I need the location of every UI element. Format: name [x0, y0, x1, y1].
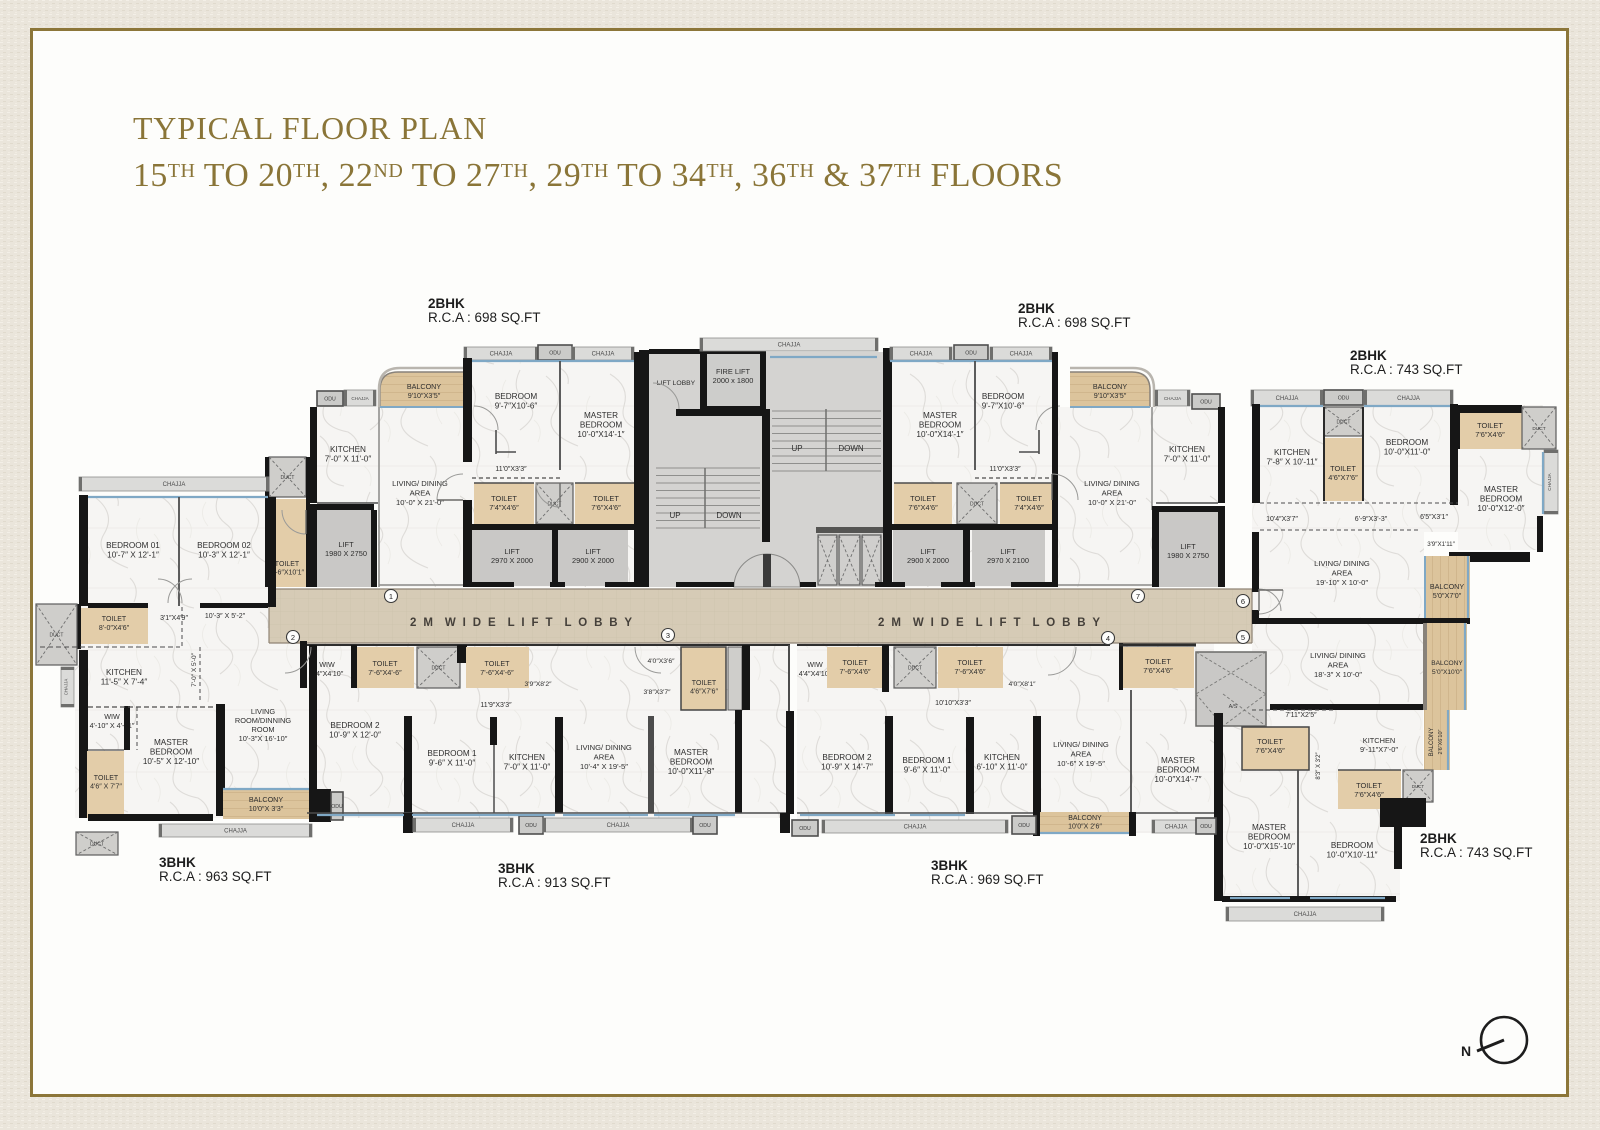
- svg-text:LIFT: LIFT: [920, 547, 936, 556]
- svg-text:9'-6″ X 11'-0″: 9'-6″ X 11'-0″: [904, 766, 951, 775]
- svg-text:A/S: A/S: [1229, 704, 1238, 710]
- svg-text:CHAJJA: CHAJJA: [1294, 912, 1317, 918]
- svg-text:TOILET: TOILET: [102, 616, 127, 623]
- svg-text:ROOM/DINNING: ROOM/DINNING: [235, 716, 292, 725]
- svg-text:TOILET: TOILET: [94, 775, 119, 782]
- svg-text:DUCT: DUCT: [908, 666, 922, 672]
- svg-text:10'-0″X11'-8″: 10'-0″X11'-8″: [668, 767, 715, 776]
- svg-text:2970 X 2100: 2970 X 2100: [987, 556, 1029, 565]
- svg-text:2BHK: 2BHK: [428, 296, 465, 311]
- svg-text:4'6″ X 7'7″: 4'6″ X 7'7″: [90, 784, 122, 791]
- svg-text:UP: UP: [669, 511, 680, 520]
- svg-text:BEDROOM: BEDROOM: [1248, 833, 1290, 842]
- svg-text:TOILET: TOILET: [1016, 494, 1042, 503]
- svg-text:TOILET: TOILET: [1356, 781, 1382, 790]
- svg-text:7'-0″ X 5'-0″: 7'-0″ X 5'-0″: [191, 652, 198, 687]
- svg-text:CHAJJA: CHAJJA: [1010, 352, 1033, 358]
- svg-text:10'-0″X14'-1″: 10'-0″X14'-1″: [916, 430, 963, 439]
- svg-text:5'0″X7'0″: 5'0″X7'0″: [1433, 591, 1462, 600]
- svg-text:R.C.A : 743 SQ.FT: R.C.A : 743 SQ.FT: [1350, 362, 1463, 377]
- svg-text:TOILET: TOILET: [1477, 421, 1503, 430]
- svg-text:MASTER: MASTER: [1252, 823, 1286, 832]
- svg-text:ODU: ODU: [324, 397, 336, 403]
- svg-text:KITCHEN: KITCHEN: [1274, 448, 1310, 457]
- svg-text:CHAJJA: CHAJJA: [904, 825, 927, 831]
- svg-text:10'-0″X12'-0″: 10'-0″X12'-0″: [1477, 504, 1524, 513]
- svg-text:DOWN: DOWN: [716, 511, 742, 520]
- svg-text:MASTER: MASTER: [584, 411, 618, 420]
- svg-text:7'-6″X4'6″: 7'-6″X4'6″: [839, 667, 870, 676]
- svg-text:3BHK: 3BHK: [498, 861, 535, 876]
- svg-text:4'6″X7'6″: 4'6″X7'6″: [1328, 473, 1358, 482]
- svg-text:BEDROOM 01: BEDROOM 01: [106, 541, 160, 550]
- svg-text:UP: UP: [791, 444, 802, 453]
- svg-text:TOILET: TOILET: [275, 561, 300, 568]
- svg-text:BALCONY: BALCONY: [1429, 728, 1435, 757]
- svg-text:DUCT: DUCT: [50, 633, 64, 639]
- svg-text:18'-3″ X 10'-0″: 18'-3″ X 10'-0″: [1314, 670, 1362, 679]
- svg-text:CHAJJA: CHAJJA: [1397, 396, 1420, 402]
- svg-text:CHAJJA: CHAJJA: [351, 396, 369, 401]
- svg-text:ODU: ODU: [1338, 396, 1350, 402]
- svg-text:BALCONY: BALCONY: [1431, 660, 1463, 667]
- svg-text:DUCT: DUCT: [970, 502, 984, 508]
- svg-text:7'6″X4'6″: 7'6″X4'6″: [1255, 746, 1285, 755]
- svg-text:MASTER: MASTER: [923, 411, 957, 420]
- svg-text:CHAJJA: CHAJJA: [224, 829, 247, 835]
- svg-text:DUCT: DUCT: [281, 475, 295, 481]
- svg-text:2900 X 2000: 2900 X 2000: [572, 556, 614, 565]
- svg-text:ODU: ODU: [1200, 400, 1212, 406]
- svg-text:4'6″X7'6″: 4'6″X7'6″: [690, 689, 718, 696]
- svg-text:R.C.A : 698 SQ.FT: R.C.A : 698 SQ.FT: [1018, 315, 1131, 330]
- svg-text:6'-10″ X 11'-0″: 6'-10″ X 11'-0″: [976, 763, 1027, 772]
- svg-text:6'-9″X3'-3″: 6'-9″X3'-3″: [1355, 516, 1388, 523]
- svg-text:CHAJJA: CHAJJA: [1165, 825, 1188, 831]
- svg-text:DOWN: DOWN: [838, 444, 864, 453]
- svg-text:3BHK: 3BHK: [159, 855, 196, 870]
- svg-text:LIFT: LIFT: [1000, 547, 1016, 556]
- svg-text:TOILET: TOILET: [593, 494, 619, 503]
- svg-text:2BHK: 2BHK: [1018, 301, 1055, 316]
- svg-text:ODU: ODU: [1200, 824, 1212, 830]
- svg-text:LIVING/ DINING: LIVING/ DINING: [1314, 559, 1370, 568]
- svg-text:LIVING/ DINING: LIVING/ DINING: [576, 743, 632, 752]
- svg-text:10'-6″ X 19'-5″: 10'-6″ X 19'-5″: [1057, 759, 1105, 768]
- svg-text:BEDROOM: BEDROOM: [919, 421, 961, 430]
- svg-text:BEDROOM: BEDROOM: [982, 392, 1024, 401]
- svg-text:2BHK: 2BHK: [1350, 348, 1387, 363]
- svg-text:2: 2: [291, 633, 295, 642]
- svg-text:BEDROOM 1: BEDROOM 1: [427, 749, 477, 758]
- svg-text:10'-3″ X 12'-1″: 10'-3″ X 12'-1″: [198, 551, 250, 560]
- svg-text:BEDROOM: BEDROOM: [580, 421, 622, 430]
- svg-text:7: 7: [1136, 592, 1140, 601]
- svg-text:LIVING: LIVING: [251, 707, 275, 716]
- svg-text:BALCONY: BALCONY: [1093, 382, 1128, 391]
- svg-text:LIFT: LIFT: [585, 547, 601, 556]
- svg-text:10'-0″X14'-7″: 10'-0″X14'-7″: [1154, 775, 1201, 784]
- svg-text:10'10″X3'3″: 10'10″X3'3″: [935, 700, 971, 707]
- svg-text:1980 X 2750: 1980 X 2750: [1167, 551, 1209, 560]
- svg-text:7'4″X4'6″: 7'4″X4'6″: [489, 503, 519, 512]
- svg-text:BEDROOM: BEDROOM: [150, 748, 192, 757]
- svg-text:10'-4″ X 19'-5″: 10'-4″ X 19'-5″: [580, 762, 628, 771]
- svg-text:10'4″X3'7″: 10'4″X3'7″: [1266, 516, 1298, 523]
- svg-text:CHAJJA: CHAJJA: [910, 352, 933, 358]
- svg-text:11'-5″ X 7'-4″: 11'-5″ X 7'-4″: [101, 678, 148, 687]
- svg-text:BALCONY: BALCONY: [407, 382, 442, 391]
- svg-text:N: N: [1461, 1043, 1471, 1059]
- svg-text:KITCHEN: KITCHEN: [330, 445, 366, 454]
- svg-text:KITCHEN: KITCHEN: [1363, 736, 1395, 745]
- svg-text:TOILET: TOILET: [692, 680, 717, 687]
- svg-text:MASTER: MASTER: [674, 748, 708, 757]
- svg-text:TYPICAL FLOOR PLAN: TYPICAL FLOOR PLAN: [133, 111, 487, 146]
- svg-text:WIW: WIW: [807, 660, 823, 669]
- svg-text:7'-0″ X 11'-0″: 7'-0″ X 11'-0″: [504, 763, 551, 772]
- svg-text:11'0″X3'3″: 11'0″X3'3″: [989, 466, 1021, 473]
- svg-text:LIVING/ DINING: LIVING/ DINING: [1310, 651, 1366, 660]
- svg-text:KITCHEN: KITCHEN: [984, 753, 1020, 762]
- svg-text:8'-0″X4'6″: 8'-0″X4'6″: [99, 625, 130, 632]
- svg-text:4'0″X3'6″: 4'0″X3'6″: [647, 658, 675, 665]
- svg-text:TOILET: TOILET: [1257, 737, 1283, 746]
- svg-text:BEDROOM 2: BEDROOM 2: [822, 753, 872, 762]
- svg-text:TOILET: TOILET: [484, 659, 510, 668]
- svg-text:CHAJJA: CHAJJA: [607, 823, 630, 829]
- svg-text:CHAJJA: CHAJJA: [163, 482, 186, 488]
- svg-text:AREA: AREA: [1071, 750, 1093, 759]
- svg-text:19'-10″ X 10'-0″: 19'-10″ X 10'-0″: [1316, 578, 1368, 587]
- svg-text:10'-9″ X 14'-7″: 10'-9″ X 14'-7″: [821, 763, 873, 772]
- svg-text:10'-0″X14'-1″: 10'-0″X14'-1″: [577, 430, 624, 439]
- svg-text:LIVING/ DINING: LIVING/ DINING: [392, 479, 448, 488]
- svg-text:FIRE LIFT: FIRE LIFT: [716, 367, 751, 376]
- svg-text:R.C.A : 743 SQ.FT: R.C.A : 743 SQ.FT: [1420, 845, 1533, 860]
- svg-text:7'11″X2'5″: 7'11″X2'5″: [1285, 712, 1317, 719]
- svg-text:KITCHEN: KITCHEN: [509, 753, 545, 762]
- svg-text:7'-6″X4'-6″: 7'-6″X4'-6″: [368, 668, 402, 677]
- svg-text:R.C.A : 963 SQ.FT: R.C.A : 963 SQ.FT: [159, 869, 272, 884]
- svg-text:7'-6″X4'6″: 7'-6″X4'6″: [954, 667, 985, 676]
- svg-text:9'-7″X10'-6″: 9'-7″X10'-6″: [495, 402, 538, 411]
- svg-text:TOILET: TOILET: [910, 494, 936, 503]
- svg-text:DUCT: DUCT: [1412, 784, 1425, 789]
- svg-text:ODU: ODU: [1018, 823, 1030, 829]
- svg-text:9'10″X3'5″: 9'10″X3'5″: [1094, 391, 1127, 400]
- svg-text:6: 6: [1241, 597, 1245, 606]
- svg-text:CHAJJA: CHAJJA: [1547, 472, 1552, 490]
- svg-text:LIFT LOBBY: LIFT LOBBY: [657, 380, 696, 387]
- svg-text:AREA: AREA: [1332, 569, 1354, 578]
- svg-text:TOILET: TOILET: [491, 494, 517, 503]
- svg-text:11'0″X3'3″: 11'0″X3'3″: [495, 466, 527, 473]
- svg-text:7'-0″ X 11'-0″: 7'-0″ X 11'-0″: [325, 455, 372, 464]
- svg-text:BEDROOM: BEDROOM: [1480, 495, 1522, 504]
- svg-text:9'-7″X10'-6″: 9'-7″X10'-6″: [982, 402, 1025, 411]
- svg-text:MASTER: MASTER: [1484, 485, 1518, 494]
- svg-text:10'0″X 3'3″: 10'0″X 3'3″: [249, 804, 284, 813]
- svg-text:3'9″X8'2″: 3'9″X8'2″: [524, 681, 552, 688]
- svg-text:ODU: ODU: [525, 823, 537, 829]
- svg-text:ODU: ODU: [549, 351, 561, 357]
- svg-text:7'6″X4'6″: 7'6″X4'6″: [1354, 790, 1384, 799]
- svg-text:LIVING/ DINING: LIVING/ DINING: [1053, 740, 1109, 749]
- svg-text:AREA: AREA: [594, 753, 616, 762]
- svg-text:ODU: ODU: [965, 351, 977, 357]
- svg-text:1980 X 2750: 1980 X 2750: [325, 549, 367, 558]
- svg-text:KITCHEN: KITCHEN: [106, 668, 142, 677]
- svg-text:10'-0″X10'-11″: 10'-0″X10'-11″: [1326, 851, 1377, 860]
- svg-text:R.C.A : 969 SQ.FT: R.C.A : 969 SQ.FT: [931, 872, 1044, 887]
- svg-text:1: 1: [389, 592, 393, 601]
- svg-text:MASTER: MASTER: [1161, 756, 1195, 765]
- svg-text:9'-11″X7'-0″: 9'-11″X7'-0″: [1360, 745, 1398, 754]
- svg-text:7'-8″ X 10'-11″: 7'-8″ X 10'-11″: [1266, 458, 1317, 467]
- svg-text:CHAJJA: CHAJJA: [778, 343, 801, 349]
- svg-text:7'6″X4'6″: 7'6″X4'6″: [908, 503, 938, 512]
- svg-text:DUCT: DUCT: [432, 666, 446, 672]
- svg-text:BEDROOM: BEDROOM: [1157, 766, 1199, 775]
- svg-text:2970 X 2000: 2970 X 2000: [491, 556, 533, 565]
- svg-text:ROOM: ROOM: [252, 725, 275, 734]
- svg-text:LIVING/ DINING: LIVING/ DINING: [1084, 479, 1140, 488]
- svg-text:DUCT: DUCT: [1337, 420, 1351, 426]
- svg-text:WIW: WIW: [319, 660, 335, 669]
- svg-text:BEDROOM: BEDROOM: [670, 758, 712, 767]
- svg-text:10'-5″ X 12'-10″: 10'-5″ X 12'-10″: [143, 757, 199, 766]
- svg-text:9'-6″ X 11'-0″: 9'-6″ X 11'-0″: [429, 759, 476, 768]
- svg-text:AREA: AREA: [1328, 661, 1350, 670]
- svg-text:10'-3″ X 5'-2″: 10'-3″ X 5'-2″: [205, 613, 246, 620]
- svg-text:WIW: WIW: [104, 712, 120, 721]
- svg-text:10'0″X 2'6″: 10'0″X 2'6″: [1068, 824, 1102, 831]
- svg-text:R.C.A : 913 SQ.FT: R.C.A : 913 SQ.FT: [498, 875, 611, 890]
- svg-text:TOILET: TOILET: [842, 658, 868, 667]
- svg-text:TOILET: TOILET: [957, 658, 983, 667]
- svg-text:BEDROOM: BEDROOM: [495, 392, 537, 401]
- svg-text:BEDROOM 2: BEDROOM 2: [330, 721, 380, 730]
- svg-text:CHAJJA: CHAJJA: [1276, 396, 1299, 402]
- svg-text:CHAJJA: CHAJJA: [1164, 396, 1182, 401]
- svg-text:3'8″X3'7″: 3'8″X3'7″: [643, 689, 671, 696]
- svg-text:4'0″X8'1″: 4'0″X8'1″: [1008, 681, 1036, 688]
- svg-text:LIFT: LIFT: [504, 547, 520, 556]
- svg-text:ODU: ODU: [699, 823, 711, 829]
- svg-text:ODU: ODU: [799, 826, 811, 832]
- svg-text:7'4″X4'6″: 7'4″X4'6″: [1014, 503, 1044, 512]
- svg-text:BEDROOM 02: BEDROOM 02: [197, 541, 251, 550]
- svg-text:6'5″X3'1″: 6'5″X3'1″: [1420, 514, 1448, 521]
- svg-text:9'10″X3'5″: 9'10″X3'5″: [408, 391, 441, 400]
- svg-text:7'6″X4'6″: 7'6″X4'6″: [1143, 666, 1173, 675]
- svg-text:7'6″X4'6″: 7'6″X4'6″: [1475, 430, 1505, 439]
- svg-text:R.C.A : 698 SQ.FT: R.C.A : 698 SQ.FT: [428, 310, 541, 325]
- svg-text:KITCHEN: KITCHEN: [1169, 445, 1205, 454]
- svg-text:BEDROOM: BEDROOM: [1331, 841, 1373, 850]
- svg-text:8'3″ X 3'2″: 8'3″ X 3'2″: [1316, 752, 1322, 780]
- svg-text:2BHK: 2BHK: [1420, 831, 1457, 846]
- svg-text:BALCONY: BALCONY: [249, 795, 284, 804]
- svg-text:LIFT: LIFT: [1180, 542, 1196, 551]
- svg-text:10'-0″X11'-0″: 10'-0″X11'-0″: [1384, 448, 1431, 457]
- svg-text:10'-0″X15'-10″: 10'-0″X15'-10″: [1243, 842, 1295, 851]
- svg-text:TOILET: TOILET: [1330, 464, 1356, 473]
- svg-text:7'-6″X4'-6″: 7'-6″X4'-6″: [480, 668, 514, 677]
- svg-text:LIFT: LIFT: [338, 540, 354, 549]
- svg-text:10'-0″ X 21'-0″: 10'-0″ X 21'-0″: [1088, 498, 1136, 507]
- svg-text:5: 5: [1241, 633, 1245, 642]
- svg-text:4: 4: [1106, 634, 1110, 643]
- svg-text:7'6″X4'6″: 7'6″X4'6″: [591, 503, 621, 512]
- svg-text:10'-9″ X 12'-0″: 10'-9″ X 12'-0″: [329, 731, 381, 740]
- svg-text:5'0″X10'0″: 5'0″X10'0″: [1432, 669, 1463, 676]
- svg-text:TOILET: TOILET: [372, 659, 398, 668]
- svg-text:2'6″X6'10″: 2'6″X6'10″: [1438, 729, 1444, 754]
- svg-text:11'9″X3'3″: 11'9″X3'3″: [480, 702, 512, 709]
- svg-text:CHAJJA: CHAJJA: [64, 679, 69, 696]
- svg-text:10'-3″X 16'-10″: 10'-3″X 16'-10″: [239, 734, 288, 743]
- svg-text:CHAJJA: CHAJJA: [490, 352, 513, 358]
- svg-text:4'4″X4'10″: 4'4″X4'10″: [799, 669, 832, 678]
- svg-text:BEDROOM 1: BEDROOM 1: [902, 756, 952, 765]
- svg-text:3: 3: [666, 631, 670, 640]
- svg-text:MASTER: MASTER: [154, 738, 188, 747]
- svg-text:2000 x 1800: 2000 x 1800: [713, 376, 754, 385]
- svg-text:2900 X 2000: 2900 X 2000: [907, 556, 949, 565]
- svg-text:TOILET: TOILET: [1145, 657, 1171, 666]
- svg-text:ODU: ODU: [331, 804, 343, 810]
- svg-text:3BHK: 3BHK: [931, 858, 968, 873]
- svg-text:BALCONY: BALCONY: [1430, 582, 1465, 591]
- svg-text:CHAJJA: CHAJJA: [592, 352, 615, 358]
- svg-text:3'1″X4'9″: 3'1″X4'9″: [160, 615, 188, 622]
- svg-text:CHAJJA: CHAJJA: [452, 823, 475, 829]
- svg-text:7'-0″ X 11'-0″: 7'-0″ X 11'-0″: [1164, 455, 1211, 464]
- svg-text:BALCONY: BALCONY: [1068, 815, 1102, 822]
- svg-text:BEDROOM: BEDROOM: [1386, 438, 1428, 447]
- svg-text:AREA: AREA: [1102, 489, 1124, 498]
- svg-text:AREA: AREA: [410, 489, 432, 498]
- svg-text:3'9″X1'11″: 3'9″X1'11″: [1427, 541, 1455, 548]
- svg-text:10'-7″ X 12'-1″: 10'-7″ X 12'-1″: [107, 551, 159, 560]
- svg-text:DUCT: DUCT: [1532, 426, 1545, 432]
- svg-text:DUCT: DUCT: [90, 842, 104, 848]
